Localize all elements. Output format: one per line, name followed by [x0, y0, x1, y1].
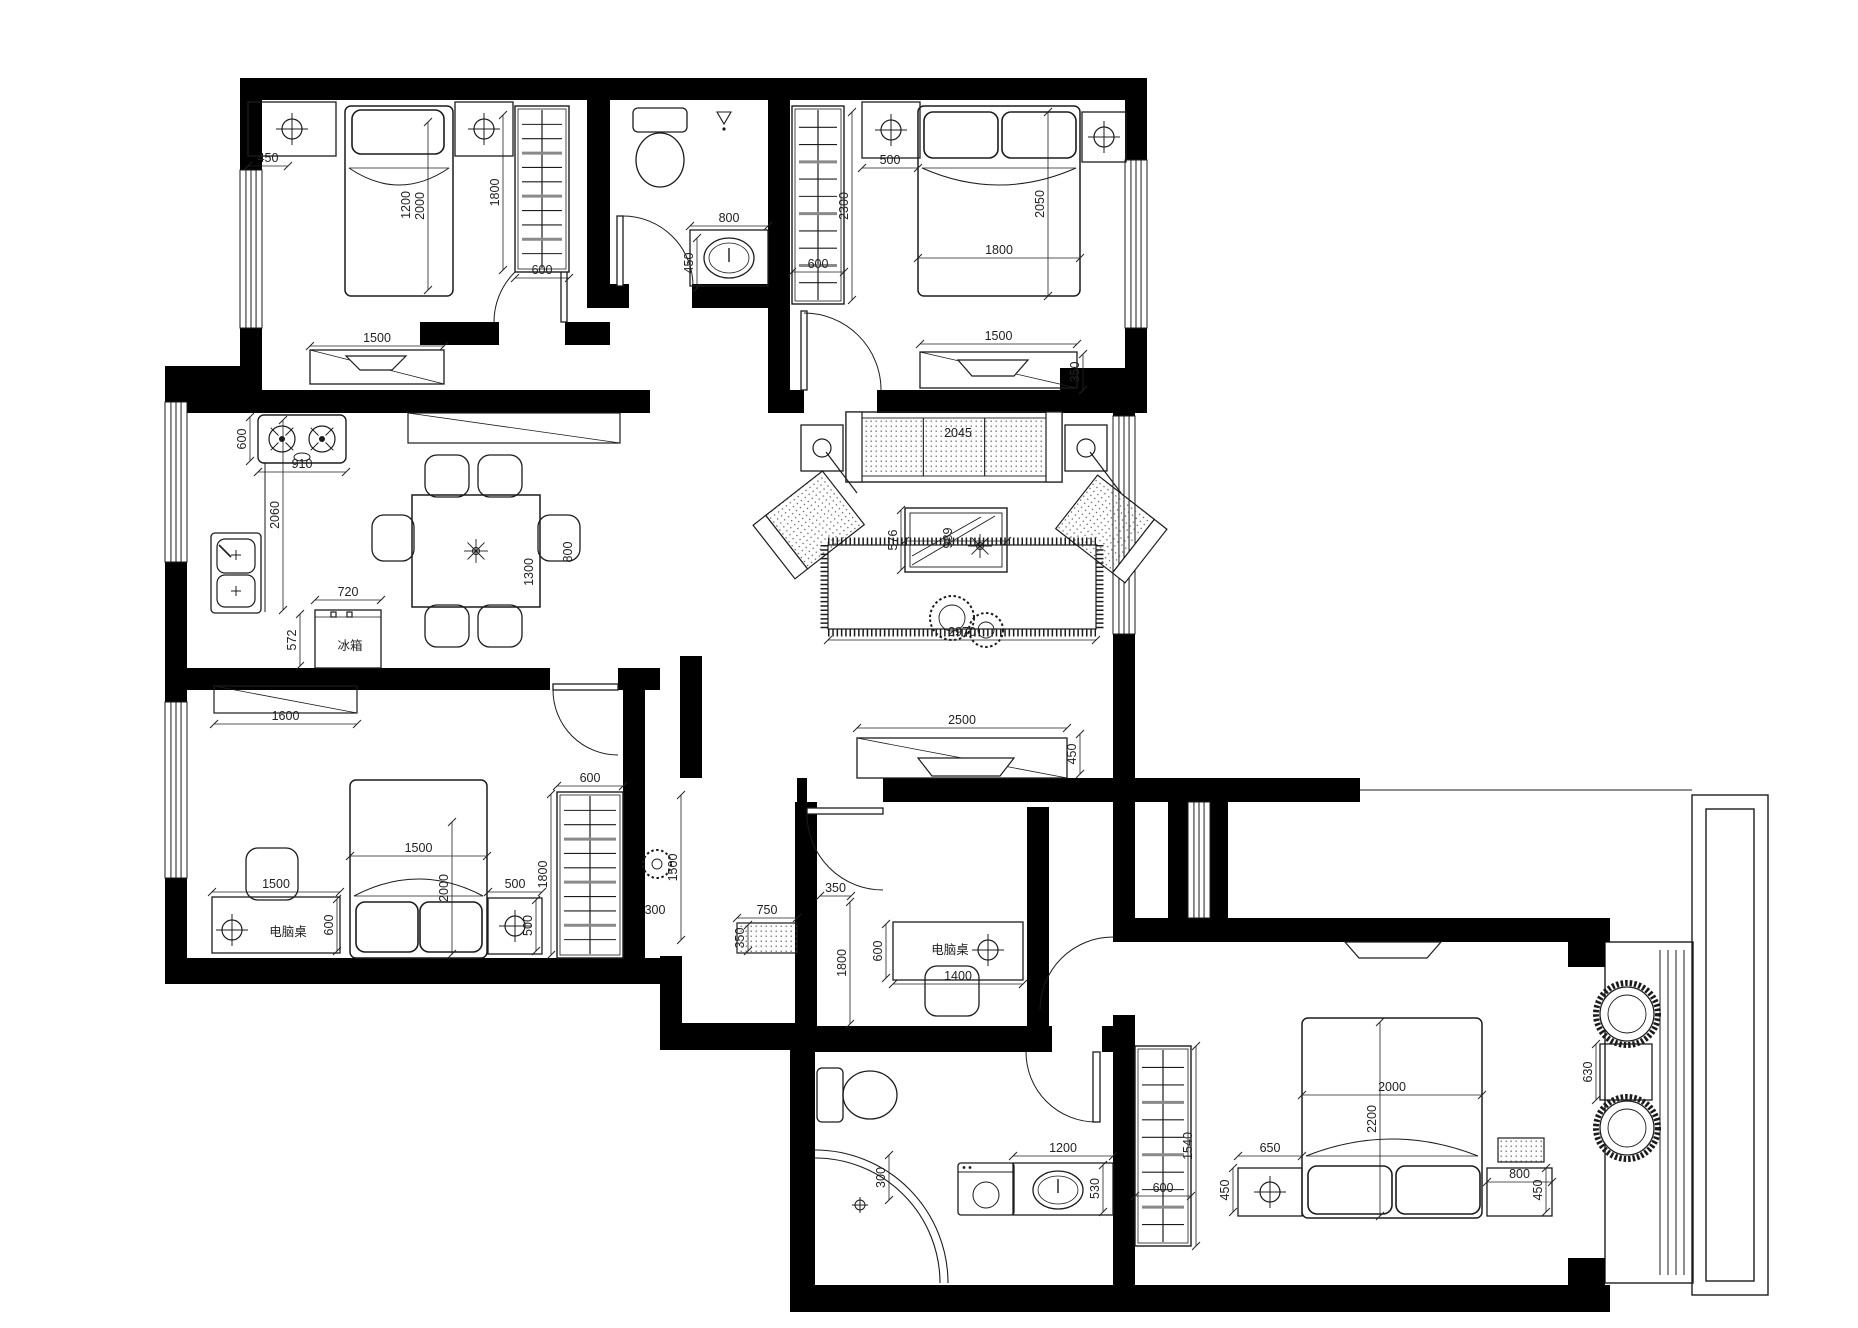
dim-text: 1500 — [262, 877, 290, 891]
bay-frame — [1692, 795, 1768, 1295]
round-chair — [1596, 1097, 1658, 1159]
dimension: 600 — [322, 895, 341, 955]
dim-text: 1500 — [666, 854, 680, 882]
sofa — [846, 412, 1062, 482]
dim-text: 2000 — [1378, 1080, 1406, 1094]
dim-text: 800 — [719, 211, 740, 225]
dimension: 650 — [1234, 1141, 1306, 1160]
dim-text: 1800 — [488, 179, 502, 207]
wall-segment — [587, 284, 629, 308]
dim-text: 450 — [1218, 1180, 1232, 1201]
sofa-cushion — [862, 418, 923, 476]
dimension: 300 — [874, 1151, 893, 1204]
wall-segment — [1027, 807, 1049, 1052]
dim-text: 350 — [1068, 362, 1082, 383]
wall-segment — [1135, 1285, 1610, 1312]
dimension: 800 — [1483, 1167, 1556, 1186]
wall-segment — [790, 390, 804, 413]
dimension: 572 — [285, 610, 304, 670]
bed — [1302, 1018, 1482, 1218]
toilet — [633, 108, 687, 187]
dimension: 600 — [871, 920, 890, 982]
floor-plan: 4502000180060015008004506002300500180020… — [0, 0, 1858, 1328]
wall-segment — [618, 668, 660, 690]
wall-segment — [797, 778, 807, 802]
chair — [425, 455, 469, 497]
dim-text: 530 — [1088, 1178, 1102, 1199]
wall-segment — [240, 78, 1147, 100]
dim-text: 630 — [1581, 1062, 1595, 1083]
door-swing-arc — [1040, 937, 1113, 1010]
dim-text: 600 — [322, 915, 336, 936]
plan-label: 989 — [941, 528, 955, 549]
pillow — [1002, 112, 1076, 158]
dim-text: 1600 — [272, 709, 300, 723]
wall-segment — [795, 802, 817, 1052]
dim-text: 450 — [1531, 1180, 1545, 1201]
dim-text: 600 — [1153, 1181, 1174, 1195]
wall-segment — [883, 778, 1225, 802]
dim-text: 2050 — [1033, 190, 1047, 218]
sofa-cushion — [985, 418, 1046, 476]
dimension: 800 — [686, 211, 772, 230]
pillow — [1396, 1166, 1480, 1214]
bed — [918, 106, 1080, 296]
window — [240, 170, 262, 328]
dim-text: 600 — [871, 941, 885, 962]
wall-segment — [692, 284, 770, 308]
wall-segment — [1113, 918, 1610, 942]
window — [165, 702, 187, 878]
dim-text: 2000 — [437, 874, 451, 902]
sofa-armrest — [1046, 412, 1062, 482]
dimension: 600 — [553, 771, 627, 790]
window — [1125, 160, 1147, 328]
wall-segment — [1102, 1026, 1135, 1052]
dimension: 600 — [235, 413, 254, 465]
door-swing-arc — [1026, 1052, 1096, 1122]
tv-cabinet — [920, 352, 1077, 388]
tv-icon — [1345, 942, 1441, 958]
lamp-icon — [216, 914, 248, 946]
dim-text: 500 — [521, 915, 535, 936]
dimension: 450 — [1218, 1164, 1237, 1216]
dimension: 1400 — [889, 969, 1027, 988]
dim-text: 572 — [285, 630, 299, 651]
chair — [425, 605, 469, 647]
wall-segment — [420, 322, 499, 345]
toilet-tank — [633, 108, 687, 132]
toilet — [817, 1068, 897, 1122]
rug — [824, 541, 1100, 633]
dimension: 630 — [1581, 1040, 1600, 1104]
door-leaf — [553, 684, 618, 690]
gas-stove — [258, 415, 346, 463]
round-chair — [1596, 983, 1658, 1045]
dim-text: 1800 — [835, 949, 849, 977]
dim-text: 1200 — [1049, 1141, 1077, 1155]
bay-window-frames — [265, 463, 1768, 1295]
shelf — [408, 413, 620, 443]
plan-label: 300 — [645, 903, 666, 917]
dim-text: 1500 — [363, 331, 391, 345]
bed — [350, 780, 487, 958]
dim-text: 1800 — [985, 243, 1013, 257]
wall-segment — [165, 366, 262, 390]
dimension: 1200 — [1009, 1141, 1117, 1160]
dim-text: 500 — [880, 153, 901, 167]
flower-icon — [464, 539, 488, 563]
dim-text: 450 — [682, 253, 696, 274]
sofa-armrest — [846, 412, 862, 482]
door-leaf — [801, 311, 807, 390]
dim-text: 650 — [1260, 1141, 1281, 1155]
dim-text: 576 — [886, 530, 900, 551]
door-swing-arc — [807, 814, 883, 890]
dimension: 500 — [521, 896, 540, 955]
wall-segment — [165, 958, 682, 984]
flower-icon — [968, 534, 992, 558]
dim-text: 600 — [580, 771, 601, 785]
wall-segment — [1568, 1258, 1605, 1285]
wall-segment — [790, 1285, 1135, 1312]
armchair — [1056, 475, 1167, 583]
dimension: 350 — [816, 881, 855, 900]
chair — [478, 605, 522, 647]
chair — [372, 515, 414, 561]
wall-segment — [680, 656, 702, 778]
wall-segment — [660, 1023, 800, 1050]
dimension: 2970 — [824, 625, 1100, 644]
tv-cabinet — [310, 350, 444, 384]
dim-text: 2200 — [1365, 1105, 1379, 1133]
dimension: 750 — [733, 903, 801, 922]
dim-text: 1800 — [536, 861, 550, 889]
chair — [478, 455, 522, 497]
wall-segment — [790, 1048, 815, 1312]
wall-segment — [1568, 942, 1605, 967]
door-leaf — [1093, 1052, 1100, 1122]
wall-segment — [795, 1026, 1052, 1052]
lamp-icon — [1254, 1176, 1286, 1208]
dimension: 450 — [1065, 730, 1084, 778]
plan-label: 1300 — [522, 558, 536, 586]
dim-text: 450 — [258, 151, 279, 165]
wall-segment — [565, 322, 610, 345]
dimension: 1800 — [536, 790, 555, 959]
plan-label: 冰箱 — [337, 638, 362, 653]
wall-segment — [1113, 390, 1135, 416]
lamp-icon — [276, 113, 308, 145]
dim-text: 300 — [874, 1167, 888, 1188]
plan-label: 1200 — [399, 191, 413, 219]
window — [165, 402, 187, 562]
dimension: 1600 — [210, 709, 361, 728]
dimension: 530 — [1088, 1161, 1107, 1216]
plan-label: 电脑桌 — [931, 943, 969, 957]
dimension — [901, 537, 1011, 545]
dim-text: 350 — [825, 881, 846, 895]
wall-segment — [1225, 778, 1360, 802]
dim-text: 800 — [1509, 1167, 1530, 1181]
dim-text: 2060 — [268, 501, 282, 529]
dim-text: 600 — [808, 257, 829, 271]
wall-segment — [165, 390, 650, 413]
dim-text: 1500 — [405, 841, 433, 855]
toilet-bowl — [843, 1071, 897, 1119]
door-swing-arc — [623, 216, 693, 286]
tv-icon — [958, 360, 1028, 376]
dimension: 1500 — [208, 877, 344, 896]
door-swing-arc — [553, 690, 618, 755]
toilet-tank — [817, 1068, 843, 1122]
floor-plan-canvas: 4502000180060015008004506002300500180020… — [0, 0, 1858, 1328]
window — [1188, 802, 1210, 918]
dim-text: 2300 — [837, 192, 851, 220]
dim-text: 600 — [532, 263, 553, 277]
lamp-icon — [972, 934, 1004, 966]
door-leaf — [617, 216, 623, 286]
wall-segment — [1113, 1015, 1135, 1312]
wall-segment — [623, 690, 645, 984]
wall-segment — [1125, 100, 1147, 160]
dim-text: 1540 — [1181, 1132, 1195, 1160]
dimension: 450 — [682, 234, 701, 292]
dim-text: 2970 — [948, 625, 976, 639]
pillow — [1308, 1166, 1392, 1214]
dim-text: 720 — [338, 585, 359, 599]
door-swing-arc — [804, 313, 881, 390]
dim-text: 600 — [235, 429, 249, 450]
bedside-mat — [1498, 1138, 1544, 1162]
pillow — [356, 902, 418, 952]
plan-label: 800 — [561, 542, 575, 563]
pillow — [352, 110, 444, 154]
floor-drain-icon — [852, 1197, 868, 1213]
dim-text: 2500 — [948, 713, 976, 727]
pillow — [924, 112, 998, 158]
wall-segment — [768, 100, 790, 413]
dim-text: 2000 — [413, 192, 427, 220]
bathroom-sink — [690, 230, 768, 286]
tv-icon — [346, 356, 406, 370]
plan-label: 2045 — [944, 426, 972, 440]
bay-table — [1600, 1044, 1652, 1100]
bay-frame — [1706, 809, 1754, 1281]
dimension: 450 — [1531, 1164, 1550, 1216]
dimension: 1800 — [835, 898, 854, 1028]
dim-text: 350 — [733, 928, 747, 949]
dimension: 500 — [858, 153, 922, 172]
dim-text: 500 — [505, 877, 526, 891]
dimension: 1500 — [666, 791, 685, 944]
lamp-icon — [875, 114, 907, 146]
dimension: 910 — [254, 457, 350, 476]
washing-machine — [958, 1163, 1014, 1215]
shower-head-icon — [717, 112, 731, 131]
tv-cabinet — [857, 738, 1067, 778]
dim-text: 750 — [757, 903, 778, 917]
plan-label: 电脑桌 — [269, 925, 307, 939]
dimension: 2500 — [853, 713, 1071, 732]
dim-text: 1500 — [985, 329, 1013, 343]
kitchen-sink — [211, 533, 261, 613]
wall-segment — [1210, 802, 1228, 918]
dimension: 1500 — [916, 329, 1081, 348]
wall-segment — [877, 390, 1147, 413]
door-leaf — [807, 808, 883, 814]
tv-icon — [918, 758, 1014, 776]
armchair — [753, 471, 864, 579]
wardrobe — [515, 106, 569, 272]
lamp-icon — [468, 113, 500, 145]
toilet-bowl — [636, 133, 684, 187]
dim-text: 910 — [292, 457, 313, 471]
dimension: 720 — [311, 585, 385, 604]
wardrobe — [557, 792, 623, 958]
wall-segment — [587, 100, 610, 308]
lamp-icon — [1088, 121, 1120, 153]
dim-text: 450 — [1065, 744, 1079, 765]
wall-segment — [1168, 802, 1188, 918]
pillow — [420, 902, 482, 952]
dim-text: 1400 — [944, 969, 972, 983]
